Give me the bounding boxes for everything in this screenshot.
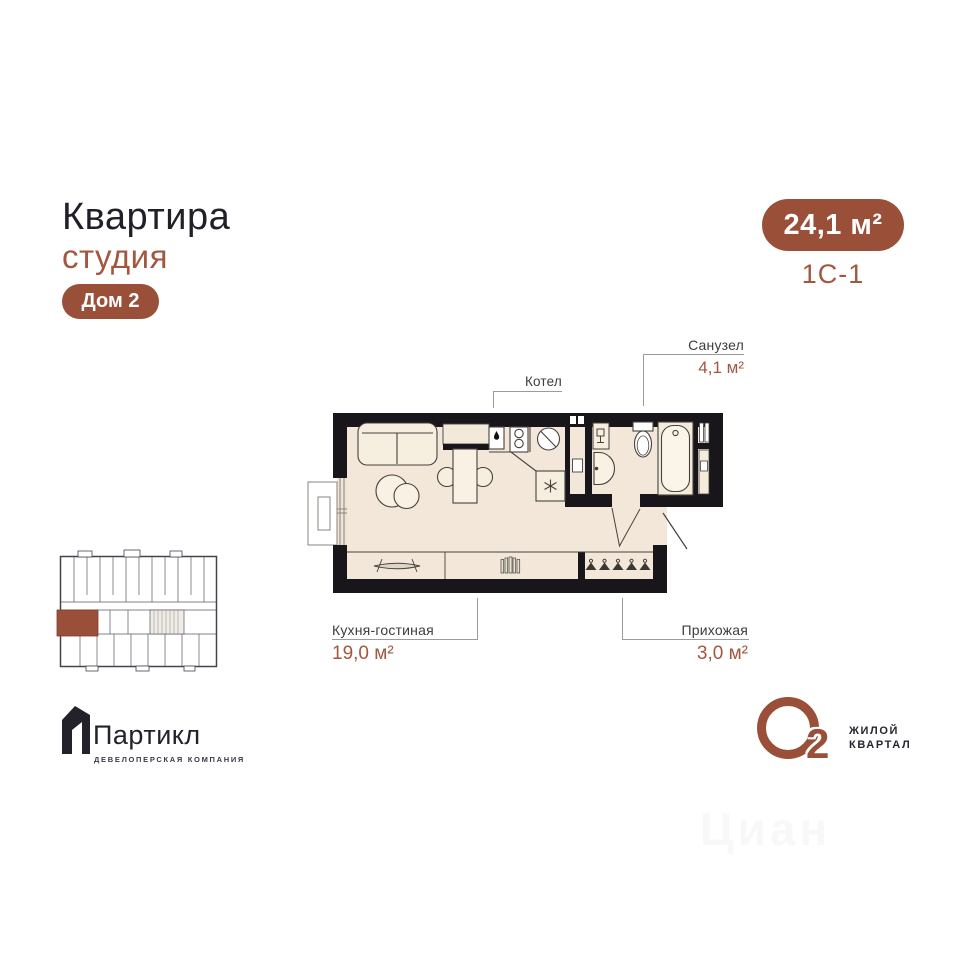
hallway-area: 3,0 м² [622, 643, 748, 665]
building-badge: Дом 2 [62, 284, 159, 319]
toilet-icon [633, 422, 653, 457]
wardrobe-cabinet [443, 424, 489, 450]
project-name-line1: ЖИЛОЙ [849, 724, 911, 738]
stove-icon [510, 427, 528, 452]
washer-unit-icon [593, 423, 609, 449]
shaft-box [573, 459, 583, 472]
bathroom-area: 4,1 м² [640, 358, 744, 378]
stair-core [150, 610, 184, 634]
hallway-label: Прихожая [622, 622, 748, 638]
bathtub-icon [658, 422, 693, 495]
kitchen-label: Кухня-гостиная [332, 622, 434, 638]
page-subtitle: студия [62, 238, 168, 276]
project-name-line2: КВАРТАЛ [849, 738, 911, 752]
project-logo: 2 ЖИЛОЙ КВАРТАЛ [757, 697, 917, 767]
project-name: ЖИЛОЙ КВАРТАЛ [849, 724, 911, 752]
books-icon [501, 557, 520, 573]
balcony [308, 482, 337, 545]
flat-plan-card: Квартира студия Дом 2 24,1 м² 1С-1 [0, 0, 960, 960]
watermark: Циан [700, 802, 831, 856]
kitchen-area: 19,0 м² [332, 643, 394, 665]
developer-logo-icon [60, 704, 92, 756]
unit-code: 1С-1 [762, 259, 904, 290]
o2-digit: 2 [806, 723, 829, 765]
building-badge-label: Дом 2 [82, 290, 140, 313]
bathroom-label: Санузел [640, 337, 744, 353]
total-area-value: 24,1 м² [783, 209, 882, 242]
highlighted-unit [57, 610, 98, 636]
boiler-icon [489, 427, 504, 449]
developer-logo: Партикл ДЕВЕЛОПЕРСКАЯ КОМПАНИЯ [60, 702, 280, 772]
page-title: Квартира [62, 196, 230, 239]
boiler-label: Котел [490, 374, 562, 389]
total-area-badge: 24,1 м² [762, 199, 904, 251]
floor-plan-drawing [295, 400, 735, 600]
developer-name: Партикл [93, 720, 201, 751]
sofa [358, 423, 437, 465]
developer-tagline: ДЕВЕЛОПЕРСКАЯ КОМПАНИЯ [94, 755, 245, 764]
building-key-plan [48, 544, 228, 676]
